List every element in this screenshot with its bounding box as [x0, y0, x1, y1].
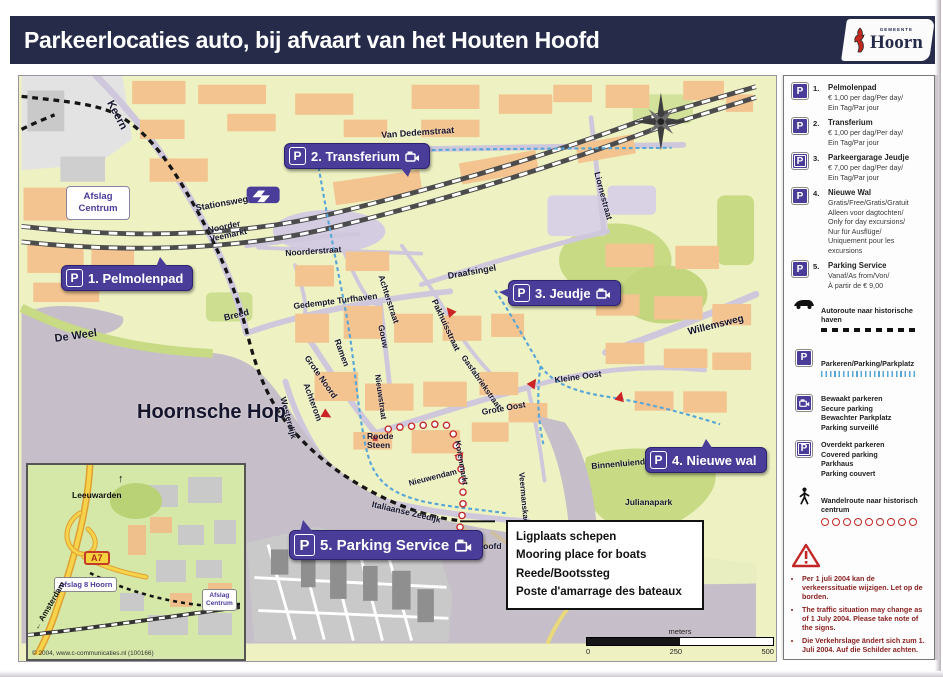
street-label: Stationsweg [195, 195, 249, 214]
scale-bar: meters 0 250 500 [586, 627, 774, 656]
legend-item-2: P 2. Transferium € 1,00 per dag/Per day/… [792, 118, 927, 147]
inset-overview-map: Leeuwarden ↑ A7 Afslag 8 Hoorn ← Amsterd… [26, 463, 246, 661]
street-label: Achterom [301, 382, 323, 422]
inset-copyright: © 2004, www.c-communicaties.nl (100166) [32, 650, 154, 657]
city-map: KeernVan DedemstraatStationswegNoorder V… [18, 75, 777, 662]
street-label: Gasfabriekstraat [459, 354, 502, 411]
street-label: Keern [104, 99, 129, 132]
blue-dash-sample [821, 371, 917, 377]
inset-north-arrow: ↑ [118, 473, 124, 486]
parking-callout-2: P 2. Transferium [284, 143, 430, 169]
inset-a7-shield: A7 [84, 551, 110, 565]
legend-parking-route: P Parkeren/Parking/Parkplatz [792, 349, 927, 387]
page-title: Parkeerlocaties auto, bij afvaart van he… [10, 27, 600, 54]
street-label: Nieuwendam [408, 468, 458, 488]
parking-icon: P [796, 350, 812, 366]
street-label: Noorderstraat [285, 245, 342, 258]
inset-afslag-centrum-sign: Afslag Centrum [202, 589, 237, 611]
scale-tick-0: 0 [586, 647, 590, 656]
street-label: Julianapark [625, 498, 672, 507]
street-label: Kleine Oost [554, 369, 602, 385]
parking-callout-5: P 5. Parking Service [289, 530, 483, 560]
hoorn-crest-icon [853, 27, 867, 53]
street-label: Roode Steen [367, 432, 393, 450]
scale-tick-250: 250 [670, 647, 683, 656]
street-label: Noorder Veemarkt [207, 218, 248, 244]
legend-covered-parking: P Overdekt parkeren Covered parking Park… [792, 440, 927, 479]
parking-icon: P [792, 83, 808, 99]
scale-tick-500: 500 [761, 647, 774, 656]
street-label: Gouw [376, 324, 390, 349]
legend-warning-section: Per 1 juli 2004 kan de verkeerssituatie … [792, 543, 927, 660]
street-label: Ramen [332, 338, 350, 368]
parking-callout-4: P 4. Nieuwe wal [645, 447, 767, 473]
covered-parking-icon: P [792, 153, 808, 169]
scan-edge-right [935, 0, 941, 677]
camera-icon [454, 539, 473, 552]
street-label: Nieuwstraat [372, 374, 387, 420]
street-label: Willemsweg [687, 314, 745, 338]
parking-p-icon: P [294, 534, 315, 556]
street-label: Grote Oost [481, 400, 526, 417]
parking-icon: P [792, 118, 808, 134]
hoorn-logo: GEMEENTE Hoorn [841, 19, 935, 61]
street-label: Achterstraat [376, 274, 400, 324]
red-circle-sample [821, 518, 927, 526]
legend-secure-parking: Bewaakt parkeren Secure parking Bewachte… [792, 394, 927, 433]
street-label: Liornestraat [592, 171, 614, 221]
legend-item-3: P 3. Parkeergarage Jeudje € 7,00 per dag… [792, 153, 927, 182]
legend-car-route: Autoroute naar historische haven [792, 296, 927, 342]
legend-item-1: P 1. Pelmolenpad € 1,00 per dag/Per day/… [792, 83, 927, 112]
street-label: Van Dedemstraat [381, 126, 455, 141]
parking-p-icon: P [650, 451, 667, 469]
logo-hoorn-text: Hoorn [870, 32, 923, 53]
street-label: Gedempte Turfhaven [293, 292, 378, 311]
street-label: Hoornsche Hop [137, 402, 286, 424]
inset-graphics [28, 465, 240, 655]
parking-callout-1: P 1. Pelmolenpad [61, 265, 193, 291]
parking-p-icon: P [513, 284, 530, 302]
camera-icon [405, 151, 420, 162]
afslag-centrum-sign: Afslag Centrum [66, 186, 130, 220]
warning-bullet: La situation routière peut être modifié … [802, 658, 927, 660]
street-label: Pakhuisstraat [430, 298, 462, 352]
black-dash-sample [821, 328, 917, 332]
street-label: De Weel [54, 328, 98, 346]
parking-icon: P [792, 188, 808, 204]
mooring-info-box: Ligplaats schepen Mooring place for boat… [506, 520, 704, 610]
warning-bullets: Per 1 juli 2004 kan de verkeerssituatie … [792, 574, 927, 660]
covered-parking-icon: P [796, 441, 812, 457]
title-bar: Parkeerlocaties auto, bij afvaart van he… [10, 16, 935, 64]
parking-p-icon: P [289, 147, 306, 165]
secure-parking-icon: P [792, 261, 808, 277]
legend-panel: P 1. Pelmolenpad € 1,00 per dag/Per day/… [783, 75, 935, 660]
street-label: Breed [223, 308, 250, 324]
legend-walking-route: Wandelroute naar historisch centrum [792, 486, 927, 536]
street-label: Draafsingel [447, 263, 497, 281]
camera-icon [796, 395, 812, 411]
warning-icon [792, 543, 820, 568]
scan-edge-bottom [0, 671, 943, 677]
legend-item-4: P 4. Nieuwe Wal Gratis/Free/Gratis/Gratu… [792, 188, 927, 255]
parking-p-icon: P [66, 269, 83, 287]
street-label: Italiaanse Zeedijk [371, 500, 442, 525]
parking-callout-3: P 3. Jeudje [508, 280, 621, 306]
pedestrian-icon [792, 486, 816, 536]
legend-item-5: P 5. Parking Service Vanaf/As from/Von/ … [792, 261, 927, 290]
inset-leeuwarden-label: Leeuwarden [72, 491, 122, 501]
camera-icon [596, 288, 611, 299]
warning-bullet: Per 1 juli 2004 kan de verkeerssituatie … [802, 574, 927, 602]
car-icon [792, 296, 816, 342]
street-label: Korenmarkt [453, 440, 469, 486]
warning-bullet: The traffic situation may change as of 1… [802, 605, 927, 633]
warning-bullet: Die Verkehrslage ändert sich zum 1. Juli… [802, 636, 927, 655]
scale-unit: meters [586, 627, 774, 636]
